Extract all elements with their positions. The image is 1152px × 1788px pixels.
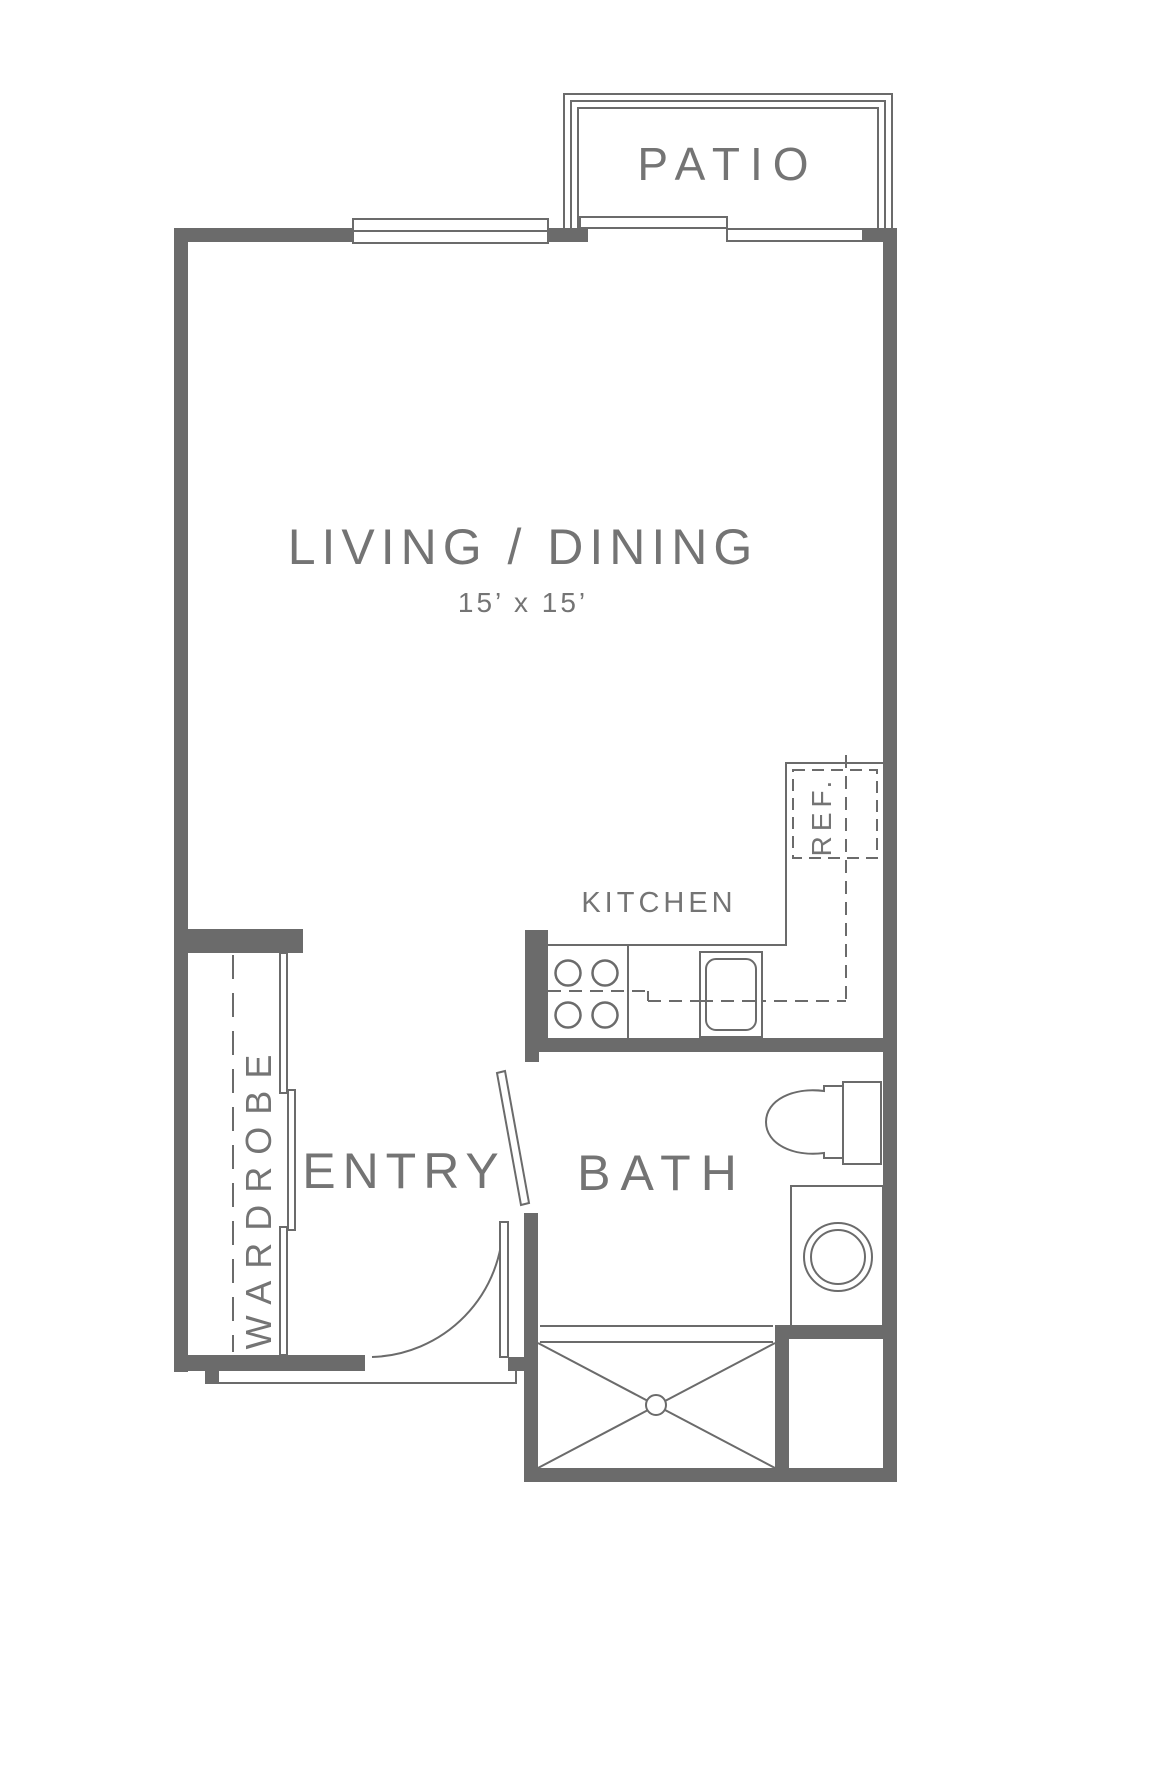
entry-threshold <box>218 1371 516 1383</box>
living-dining-label: LIVING / DINING <box>173 522 873 572</box>
sliding-door <box>580 217 863 241</box>
wardrobe-label: WARDROBE <box>241 1043 277 1350</box>
refrigerator-label: REF. <box>808 776 836 857</box>
floor-plan: PATIO LIVING / DINING 15’ x 15’ KITCHEN … <box>0 0 1152 1788</box>
window <box>353 219 548 243</box>
patio-label: PATIO <box>563 141 893 187</box>
stove-icon <box>556 961 618 1028</box>
kitchen-label: KITCHEN <box>509 889 809 918</box>
entry-door <box>372 1222 508 1357</box>
kitchen-dashed-lines <box>548 755 846 1001</box>
living-dimensions-label: 15’ x 15’ <box>173 589 873 617</box>
sink-icon <box>700 952 762 1037</box>
bath-label: BATH <box>512 1148 812 1198</box>
entry-label: ENTRY <box>254 1146 554 1196</box>
shower-stall <box>538 1326 775 1468</box>
washer-icon <box>791 1186 883 1326</box>
